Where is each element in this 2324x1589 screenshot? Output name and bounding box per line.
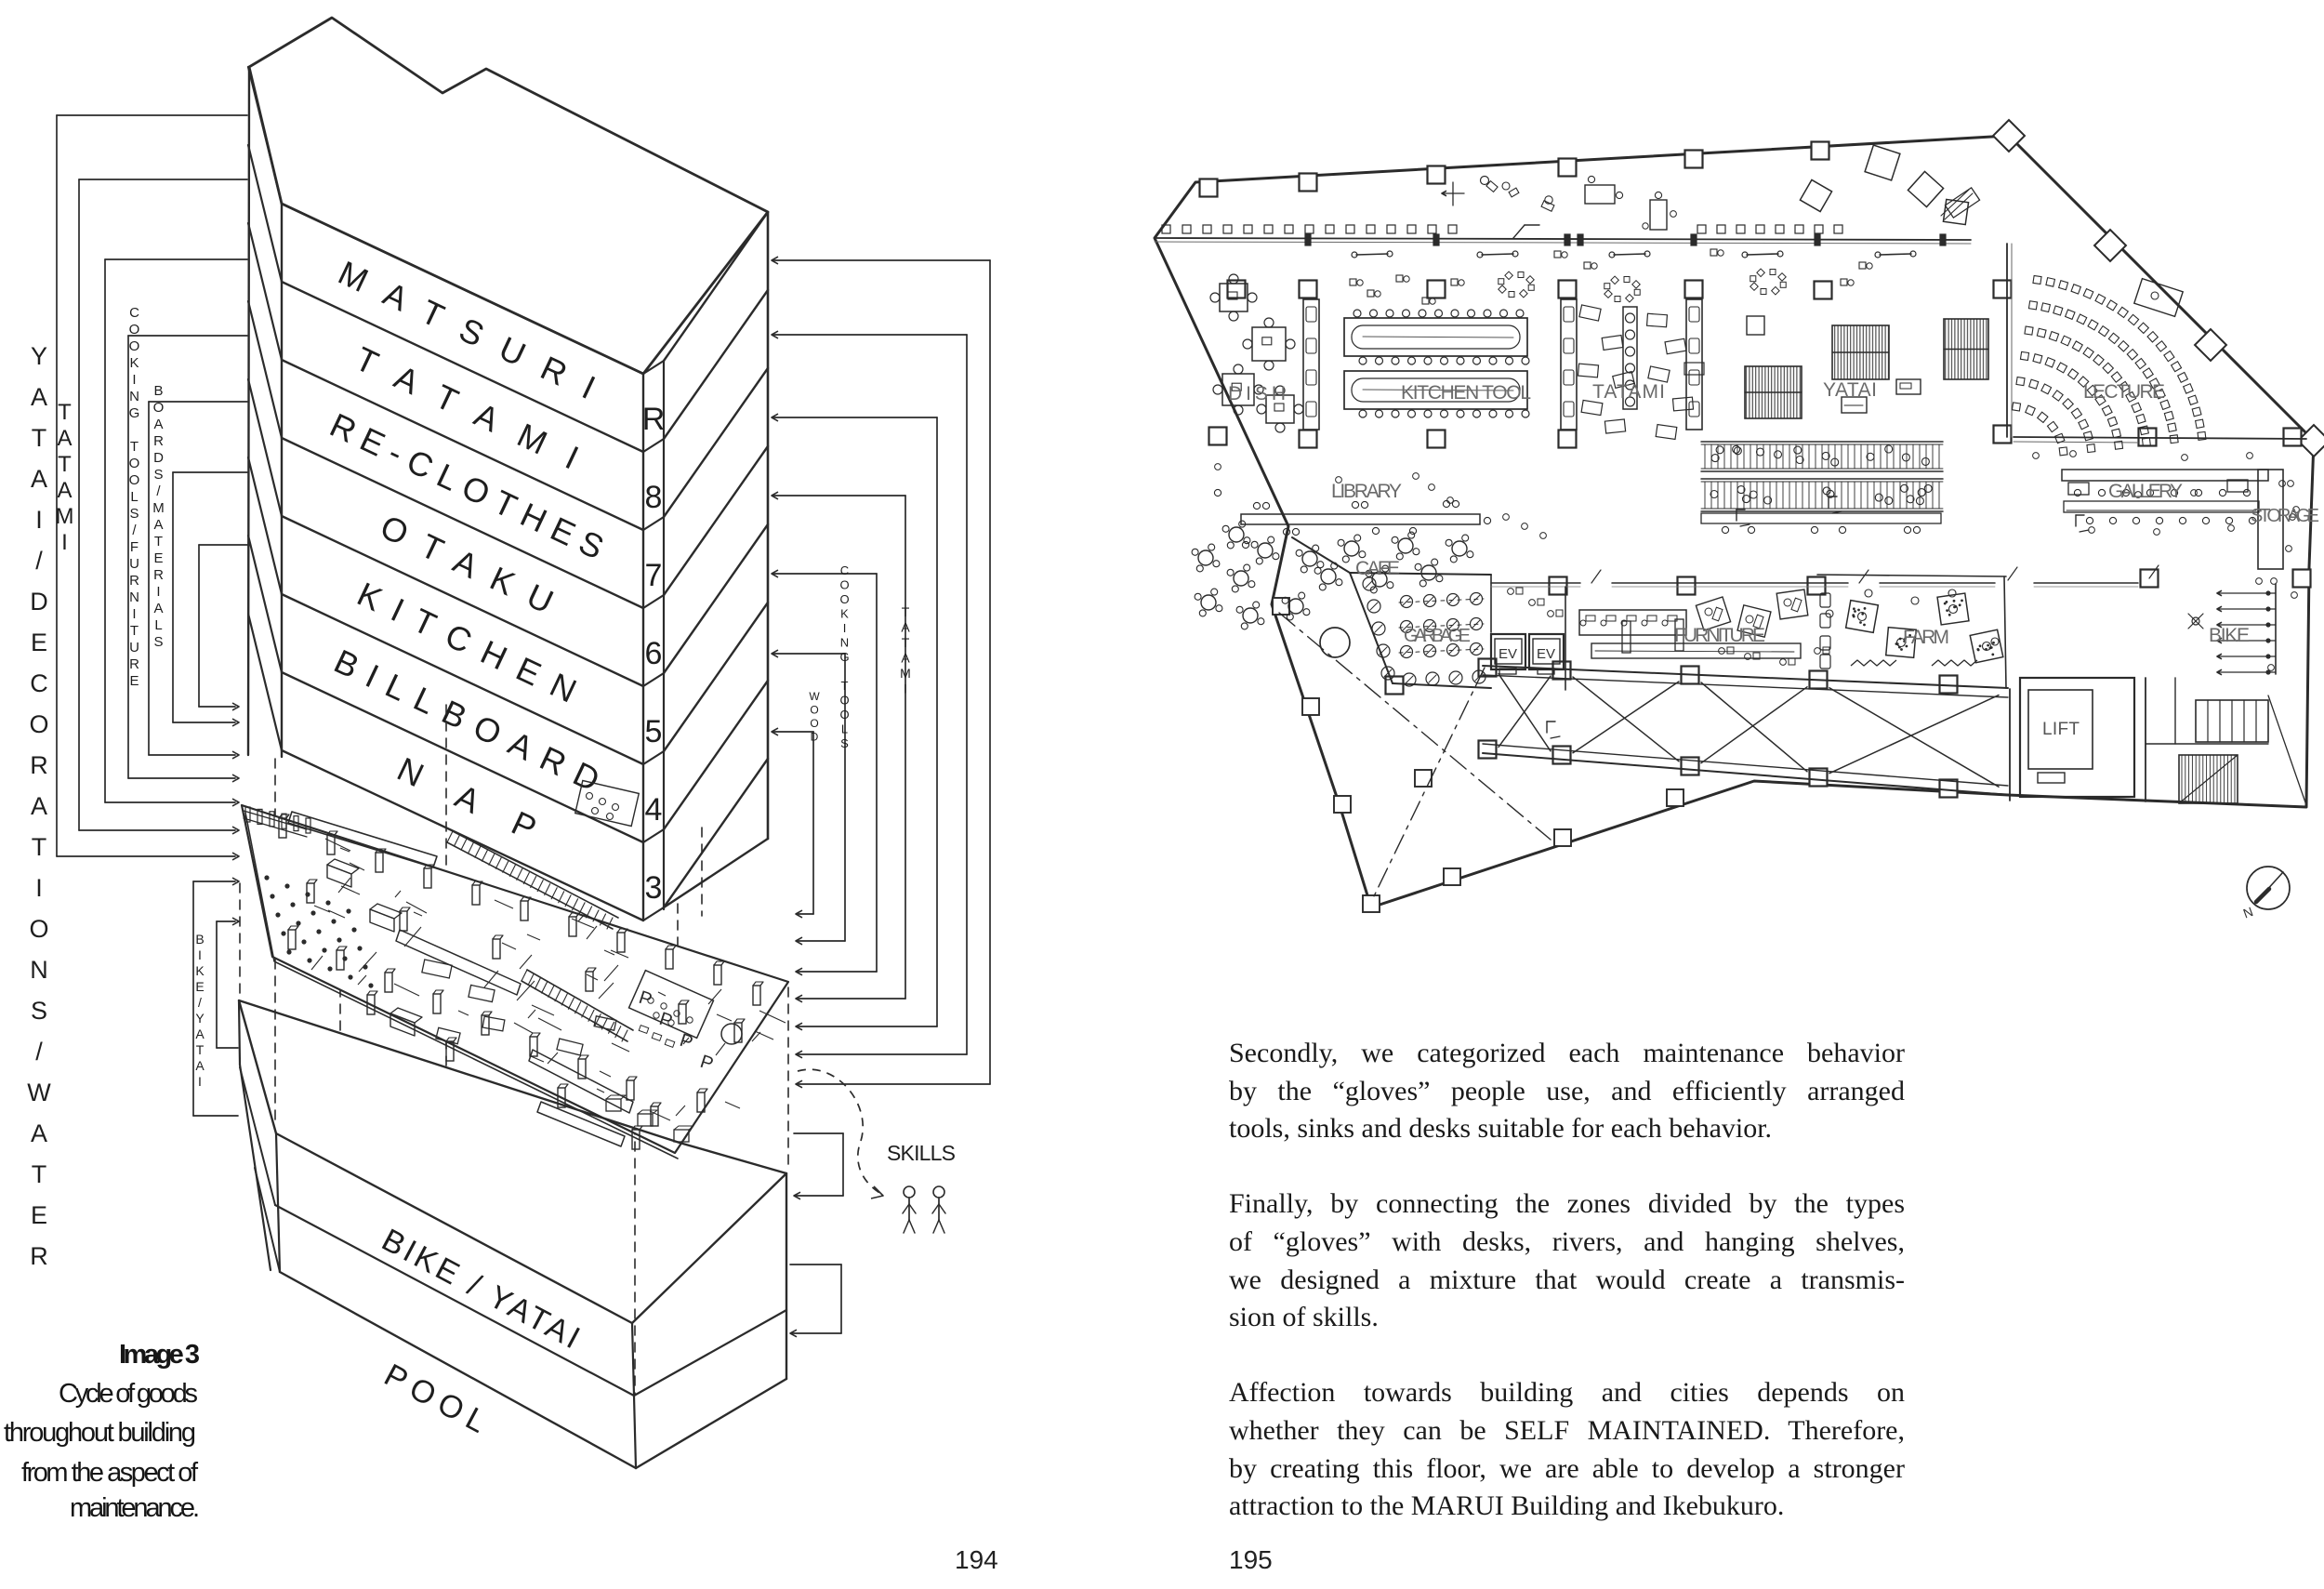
svg-text:GARBAGE: GARBAGE (1404, 626, 1471, 646)
svg-text:LIFT: LIFT (2042, 720, 2080, 739)
svg-text:POOL: POOL (378, 1357, 492, 1440)
svg-text:maintenance.: maintenance. (70, 1493, 200, 1523)
svg-text:BILLBOARD: BILLBOARD (328, 642, 605, 799)
svg-text:7: 7 (645, 558, 663, 593)
svg-text:EV: EV (1537, 646, 1555, 662)
svg-text:5: 5 (645, 714, 663, 749)
svg-text:EV: EV (1499, 646, 1517, 662)
svg-text:Image 3: Image 3 (119, 1340, 200, 1370)
svg-text:SKILLS: SKILLS (887, 1141, 956, 1165)
svg-text:BIKE: BIKE (2209, 625, 2250, 646)
svg-text:TATAMI: TATAMI (1592, 381, 1665, 403)
svg-text:8: 8 (645, 480, 663, 515)
svg-text:KITCHEN TOOL: KITCHEN TOOL (1401, 382, 1531, 404)
svg-text:6: 6 (645, 636, 663, 671)
svg-text:GALLERY: GALLERY (2108, 481, 2183, 502)
svg-text:throughout building: throughout building (4, 1418, 196, 1448)
svg-text:LECTURE: LECTURE (2083, 381, 2165, 403)
svg-text:YATAI: YATAI (1823, 379, 1877, 401)
svg-text:Cycle of goods: Cycle of goods (59, 1379, 198, 1409)
svg-text:from the aspect of: from the aspect of (21, 1458, 199, 1488)
svg-text:FURNITURE: FURNITURE (1674, 625, 1765, 646)
svg-text:STORAGE: STORAGE (2251, 506, 2319, 526)
svg-text:FARM: FARM (1903, 627, 1949, 648)
svg-text:N: N (2241, 904, 2255, 920)
svg-text:R: R (642, 402, 666, 437)
svg-text:LIBRARY: LIBRARY (1331, 481, 1402, 502)
svg-text:DISH: DISH (1228, 383, 1286, 404)
svg-text:4: 4 (645, 792, 663, 828)
svg-text:3: 3 (645, 870, 663, 906)
svg-text:CAFE: CAFE (1355, 558, 1400, 579)
